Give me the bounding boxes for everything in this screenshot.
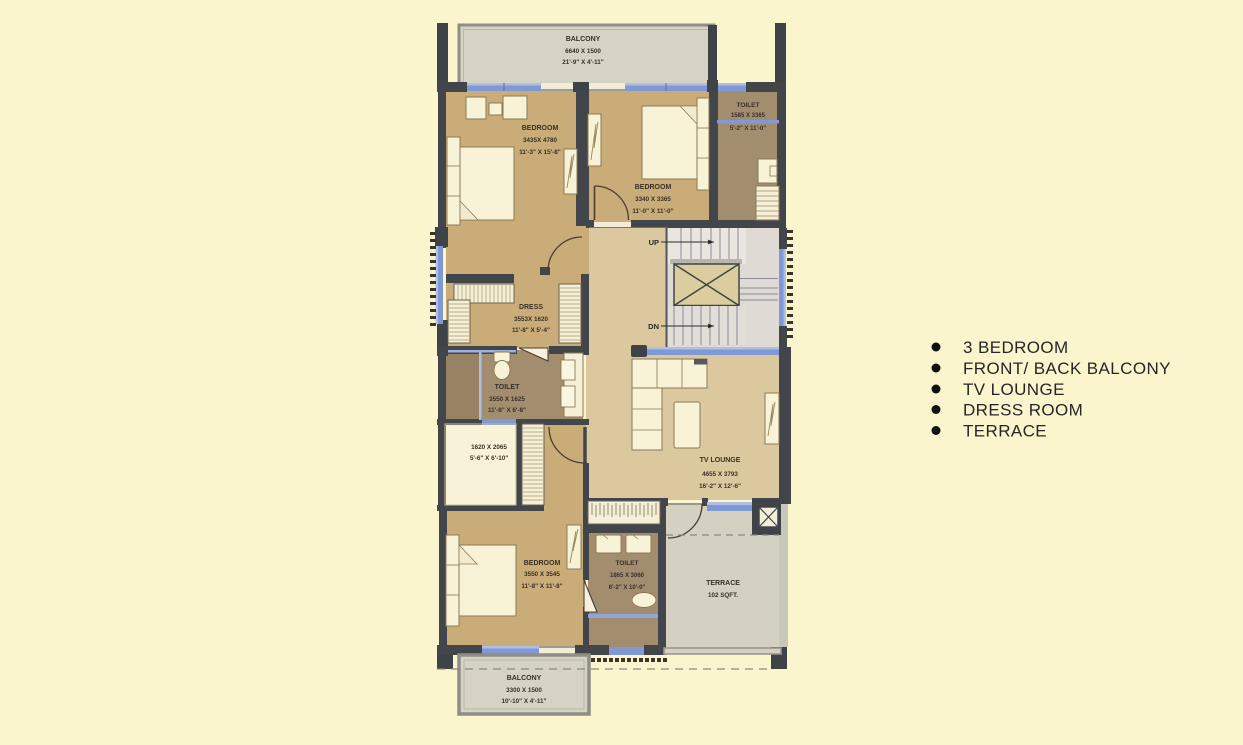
svg-text:3300 X 1500: 3300 X 1500: [506, 687, 542, 694]
svg-text:21'-9" X 4'-11": 21'-9" X 4'-11": [562, 59, 604, 66]
svg-text:11'-8" X 6'-8": 11'-8" X 6'-8": [488, 407, 526, 414]
svg-text:3550 X 3545: 3550 X 3545: [524, 571, 560, 578]
svg-text:DN: DN: [648, 322, 659, 331]
svg-text:TOILET: TOILET: [495, 384, 520, 391]
svg-text:3340 X 3365: 3340 X 3365: [635, 196, 671, 203]
svg-text:BEDROOM: BEDROOM: [522, 125, 559, 132]
svg-text:1620 X 2065: 1620 X 2065: [471, 444, 507, 451]
svg-text:102 SQFT.: 102 SQFT.: [708, 592, 738, 599]
svg-text:11'-3" X 15'-8": 11'-3" X 15'-8": [519, 149, 561, 156]
svg-text:6640 X 1500: 6640 X 1500: [565, 48, 601, 55]
svg-text:1865 X 3060: 1865 X 3060: [610, 573, 645, 579]
svg-text:6'-2" X 10'-0": 6'-2" X 10'-0": [609, 585, 646, 591]
svg-text:FRONT/ BACK BALCONY: FRONT/ BACK BALCONY: [963, 359, 1171, 378]
svg-text:3435X 4780: 3435X 4780: [523, 137, 557, 144]
svg-text:TERRACE: TERRACE: [963, 422, 1047, 441]
svg-text:3553X 1620: 3553X 1620: [514, 316, 548, 323]
svg-text:16'-2" X 12'-6": 16'-2" X 12'-6": [699, 483, 741, 490]
svg-text:5'-2" X 11'-0": 5'-2" X 11'-0": [730, 126, 766, 132]
svg-text:DRESS: DRESS: [519, 304, 543, 311]
svg-text:TOILET: TOILET: [737, 102, 760, 109]
svg-text:5'-6" X 6'-10": 5'-6" X 6'-10": [470, 455, 508, 462]
svg-text:11'-8" X 5'-4": 11'-8" X 5'-4": [512, 327, 550, 334]
svg-text:3 BEDROOM: 3 BEDROOM: [963, 338, 1069, 357]
svg-text:BALCONY: BALCONY: [507, 675, 542, 682]
svg-text:TOILET: TOILET: [616, 560, 639, 567]
svg-text:TERRACE: TERRACE: [706, 580, 740, 587]
svg-text:11'-0" X 11'-0": 11'-0" X 11'-0": [632, 208, 673, 215]
svg-text:1585 X 3365: 1585 X 3365: [731, 113, 766, 119]
svg-text:11'-8" X 11'-8": 11'-8" X 11'-8": [521, 583, 562, 590]
svg-text:10'-10" X 4'-11": 10'-10" X 4'-11": [501, 698, 546, 705]
svg-text:DRESS ROOM: DRESS ROOM: [963, 401, 1083, 420]
svg-text:BALCONY: BALCONY: [566, 36, 601, 43]
svg-text:BEDROOM: BEDROOM: [635, 184, 672, 191]
svg-text:BEDROOM: BEDROOM: [524, 560, 561, 567]
svg-text:TV LOUNGE: TV LOUNGE: [700, 457, 741, 464]
svg-text:3550 X 1625: 3550 X 1625: [489, 396, 525, 403]
svg-text:4655 X 3793: 4655 X 3793: [702, 471, 738, 478]
svg-text:TV LOUNGE: TV LOUNGE: [963, 380, 1065, 399]
svg-text:UP: UP: [649, 238, 659, 247]
